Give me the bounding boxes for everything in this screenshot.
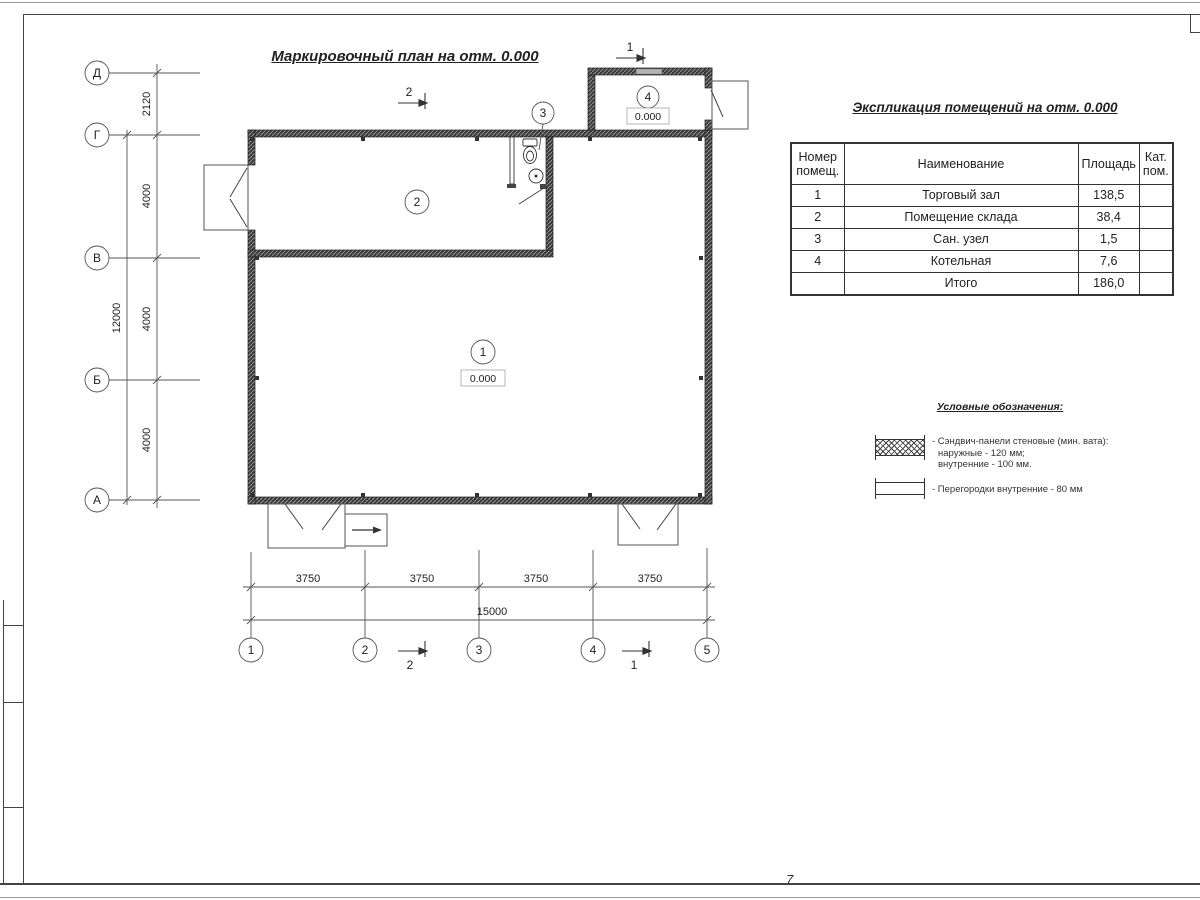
svg-text:1: 1 xyxy=(480,345,487,359)
sheet-outer-bottom-line xyxy=(0,897,1200,898)
exterior-walls xyxy=(248,130,712,504)
svg-text:15000: 15000 xyxy=(477,606,508,618)
table-row: 4 Котельная 7,6 xyxy=(791,251,1173,273)
legend-title: Условные обозначения: xyxy=(905,401,1095,413)
legend-item-partitions: - Перегородки внутренние - 80 мм xyxy=(932,484,1162,496)
sandwich-panel-hatch-swatch xyxy=(875,439,925,456)
page-mark: 7 xyxy=(786,872,793,887)
cell-name: Котельная xyxy=(844,251,1078,273)
binding-strip-divider xyxy=(3,807,23,808)
floor-plan-drawing: Д Г В Б А 2120 4000 4000 4000 12000 xyxy=(0,0,780,700)
table-row: 1 Торговый зал 138,5 xyxy=(791,185,1173,207)
col-header-cat: Кат. пом. xyxy=(1139,143,1172,185)
svg-text:3750: 3750 xyxy=(296,573,320,585)
cell-number: 2 xyxy=(791,207,844,229)
entrance-landings xyxy=(204,81,748,548)
svg-text:0.000: 0.000 xyxy=(470,373,496,385)
frame-bottom-line xyxy=(0,883,1200,885)
svg-text:3750: 3750 xyxy=(638,573,662,585)
legend-line: наружные - 120 мм; xyxy=(932,448,1162,460)
cell-name: Итого xyxy=(844,273,1078,296)
window-boiler-room xyxy=(636,69,662,74)
cell-area: 38,4 xyxy=(1078,207,1139,229)
table-row-total: Итого 186,0 xyxy=(791,273,1173,296)
cell-area: 1,5 xyxy=(1078,229,1139,251)
svg-text:1: 1 xyxy=(248,643,255,657)
col-header-cat-line2: пом. xyxy=(1143,164,1169,178)
svg-text:4000: 4000 xyxy=(141,307,153,331)
svg-text:Д: Д xyxy=(93,66,101,80)
cell-cat xyxy=(1139,273,1172,296)
cell-area: 138,5 xyxy=(1078,185,1139,207)
svg-text:1: 1 xyxy=(631,658,638,672)
table-title: Экспликация помещений на отм. 0.000 xyxy=(800,100,1170,115)
svg-text:4: 4 xyxy=(645,90,652,104)
cell-number: 3 xyxy=(791,229,844,251)
door-left-leaf-bottom xyxy=(230,199,247,227)
table-row: 2 Помещение склада 38,4 xyxy=(791,207,1173,229)
room-explication-table: Номер помещ. Наименование Площадь Кат. п… xyxy=(790,142,1174,296)
table-header-row: Номер помещ. Наименование Площадь Кат. п… xyxy=(791,143,1173,185)
svg-text:4000: 4000 xyxy=(141,428,153,452)
legend-line: - Сэндвич-панели стеновые (мин. вата): xyxy=(932,436,1162,448)
cell-name: Помещение склада xyxy=(844,207,1078,229)
cell-number: 4 xyxy=(791,251,844,273)
toilet-icon xyxy=(523,139,537,164)
cell-number xyxy=(791,273,844,296)
cell-area: 186,0 xyxy=(1078,273,1139,296)
cell-name: Сан. узел xyxy=(844,229,1078,251)
interior-walls xyxy=(248,137,553,257)
col-header-cat-line1: Кат. xyxy=(1143,150,1169,164)
axis-labels-bottom: 1 2 3 4 5 xyxy=(248,643,711,657)
axis-labels-left: Д Г В Б А xyxy=(93,66,101,507)
entrance-arrow-icon xyxy=(373,527,382,534)
svg-text:2: 2 xyxy=(414,195,421,209)
legend-line: внутренние - 100 мм. xyxy=(932,459,1162,471)
svg-text:2120: 2120 xyxy=(141,92,153,116)
col-header-area: Площадь xyxy=(1078,143,1139,185)
svg-text:12000: 12000 xyxy=(111,303,123,334)
door-bottom-left-leaf-a xyxy=(285,504,303,529)
svg-text:5: 5 xyxy=(704,643,711,657)
cell-cat xyxy=(1139,185,1172,207)
svg-text:0.000: 0.000 xyxy=(635,111,661,123)
table-row: 3 Сан. узел 1,5 xyxy=(791,229,1173,251)
svg-text:В: В xyxy=(93,251,101,265)
svg-text:3: 3 xyxy=(540,106,547,120)
frame-corner-tab xyxy=(1190,14,1200,33)
legend-item-sandwich-panels: - Сэндвич-панели стеновые (мин. вата): н… xyxy=(932,436,1162,471)
svg-text:4000: 4000 xyxy=(141,184,153,208)
svg-text:2: 2 xyxy=(406,85,413,99)
col-header-number-line2: помещ. xyxy=(795,164,841,178)
sink-icon xyxy=(529,169,543,183)
door-boiler-leaf xyxy=(711,90,723,117)
door-bottom-right-leaf-a xyxy=(622,504,640,529)
door-left-leaf-top xyxy=(230,168,247,197)
swatch-end-tick xyxy=(875,435,876,460)
swatch-end-tick xyxy=(875,478,876,499)
door-leaves xyxy=(230,90,723,530)
sanitary-partition xyxy=(510,137,514,184)
svg-text:2: 2 xyxy=(362,643,369,657)
dimension-labels-left: 2120 4000 4000 4000 12000 xyxy=(111,92,153,452)
svg-text:3: 3 xyxy=(476,643,483,657)
svg-text:1: 1 xyxy=(627,40,634,54)
cell-number: 1 xyxy=(791,185,844,207)
cell-area: 7,6 xyxy=(1078,251,1139,273)
cell-name: Торговый зал xyxy=(844,185,1078,207)
cell-cat xyxy=(1139,207,1172,229)
col-header-name: Наименование xyxy=(844,143,1078,185)
svg-text:Г: Г xyxy=(94,128,101,142)
col-header-number: Номер помещ. xyxy=(791,143,844,185)
door-bottom-left-leaf-b xyxy=(322,504,341,530)
cell-cat xyxy=(1139,251,1172,273)
svg-text:3750: 3750 xyxy=(524,573,548,585)
legend-line: - Перегородки внутренние - 80 мм xyxy=(932,484,1162,496)
landing-left xyxy=(204,165,248,230)
drawing-sheet: 7 Маркировочный план на отм. 0.000 Д Г xyxy=(0,0,1200,900)
svg-text:2: 2 xyxy=(407,658,414,672)
column-marks xyxy=(250,137,703,497)
svg-text:4: 4 xyxy=(590,643,597,657)
swatch-end-tick xyxy=(924,435,925,460)
door-sanitary-leaf xyxy=(519,188,544,204)
swatch-end-tick xyxy=(924,478,925,499)
svg-text:Б: Б xyxy=(93,373,101,387)
svg-text:А: А xyxy=(93,493,101,507)
svg-text:3750: 3750 xyxy=(410,573,434,585)
binding-strip-divider xyxy=(3,702,23,703)
col-header-number-line1: Номер xyxy=(795,150,841,164)
internal-partition-swatch xyxy=(875,482,925,495)
dimension-chain-bottom xyxy=(243,548,715,638)
landing-bottom-left xyxy=(268,504,345,548)
door-bottom-right-leaf-b xyxy=(657,504,676,530)
cell-cat xyxy=(1139,229,1172,251)
entrance-arrow-box xyxy=(345,514,387,546)
